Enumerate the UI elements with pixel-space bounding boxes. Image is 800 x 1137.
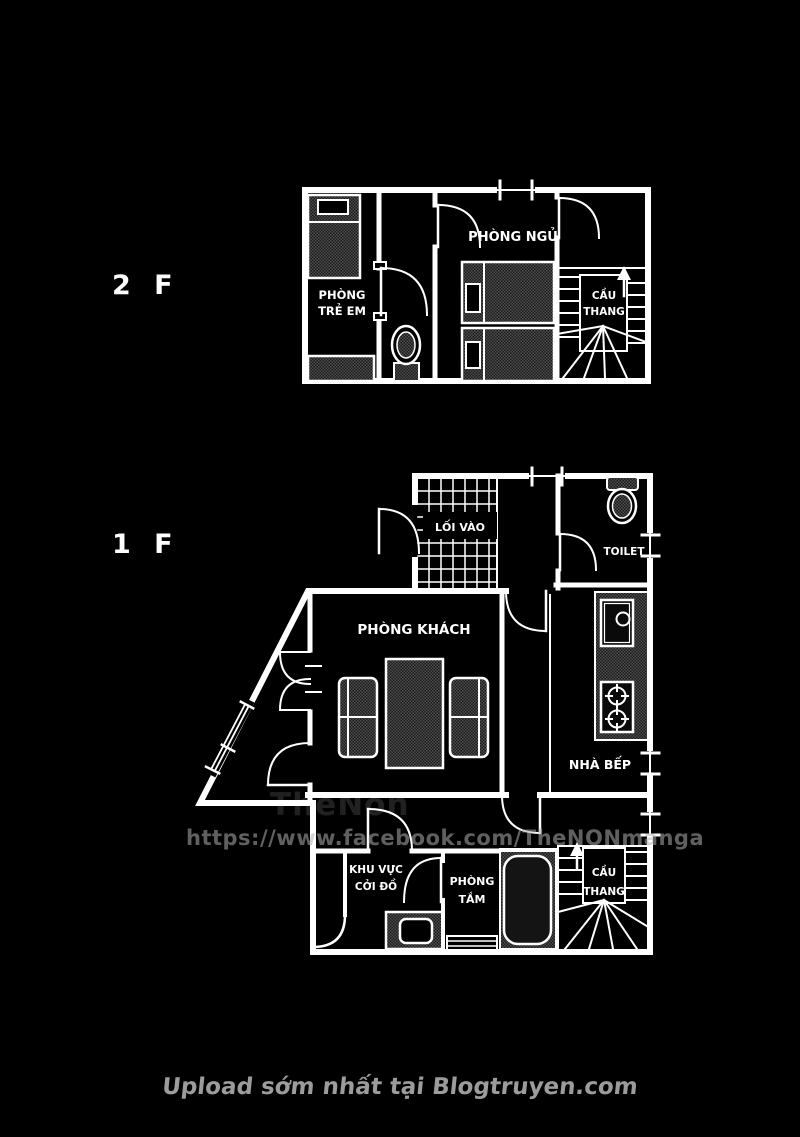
stairs-2f-label-2: THANG [583,306,624,318]
toilet-2f-icon [392,326,420,381]
french-doors-icon [280,652,321,710]
stove-icon [601,682,633,732]
drain-grate-icon [447,936,497,951]
sofa-left-icon [339,678,377,757]
kitchen-door-icon [506,591,546,631]
staircase-2f-icon [557,268,648,378]
toilet-door-icon [560,534,596,570]
changing-area-label-2: CỞI ĐỒ [355,878,397,893]
floorplan-drawing: PHÒNG TRẺ EM PHÒNG NGỦ CẦU THANG [0,0,800,1137]
washing-machine-icon [386,912,443,949]
stairs-2f-label-1: CẦU [592,288,616,302]
staircase-1f-icon [558,848,650,949]
entry-door-icon [379,505,422,557]
bed-2-icon [462,328,554,381]
bed-1-icon [462,262,554,323]
toilet-window-icon [642,531,659,559]
terrace-door-icon [268,743,310,785]
floor-2-plan: PHÒNG TRẺ EM PHÒNG NGỦ CẦU THANG [305,181,648,381]
entrance-label: LỐI VÀO [435,519,485,534]
toilet-1f-icon [607,477,638,523]
kitchen-hall-door-icon [502,795,540,833]
bedroom-label: PHÒNG NGỦ [468,228,558,245]
bathtub-icon [500,851,556,949]
changing-area-label-1: KHU VỰC [349,864,403,876]
kids-room-label-1: PHÒNG [319,287,366,302]
bathroom-label-1: PHÒNG [450,875,495,888]
stairs-door-2f-icon [559,198,599,238]
kitchen-window-2-icon [642,810,659,838]
bathroom-label-2: TẮM [459,891,486,906]
stairs-1f-label-1: CẦU [592,865,616,879]
kitchen-label: NHÀ BẾP [569,756,631,772]
stairs-1f-label-2: THANG [583,886,624,898]
sink-icon [601,600,633,646]
kids-bed-icon [308,195,360,278]
living-room-label: PHÒNG KHÁCH [357,620,470,638]
toilet-label: TOILET [603,546,645,558]
closet-door-icon [313,915,345,947]
2f-window-icon [497,181,535,199]
manga-floorplan-page: 2 F 1 F [0,0,800,1137]
kitchen-counter [595,592,648,740]
footer-caption: Upload sớm nhất tại Blogtruyen.com [161,1074,639,1100]
kids-room-label-2: TRẺ EM [318,302,366,318]
living-table-icon [386,659,443,768]
floor-1-plan: LỐI VÀO TOILET PHÒNG KHÁCH NHÀ BẾP KHU V… [200,468,659,952]
changing-room-door-icon [368,809,412,851]
wc-door-icon [374,262,427,320]
bathroom-door-icon [404,858,441,902]
up-arrow-2f-icon [617,266,631,296]
sofa-right-icon [450,678,488,757]
kitchen-window-1-icon [642,749,659,777]
desk-icon [308,356,374,381]
diagonal-window-icon [206,702,253,774]
